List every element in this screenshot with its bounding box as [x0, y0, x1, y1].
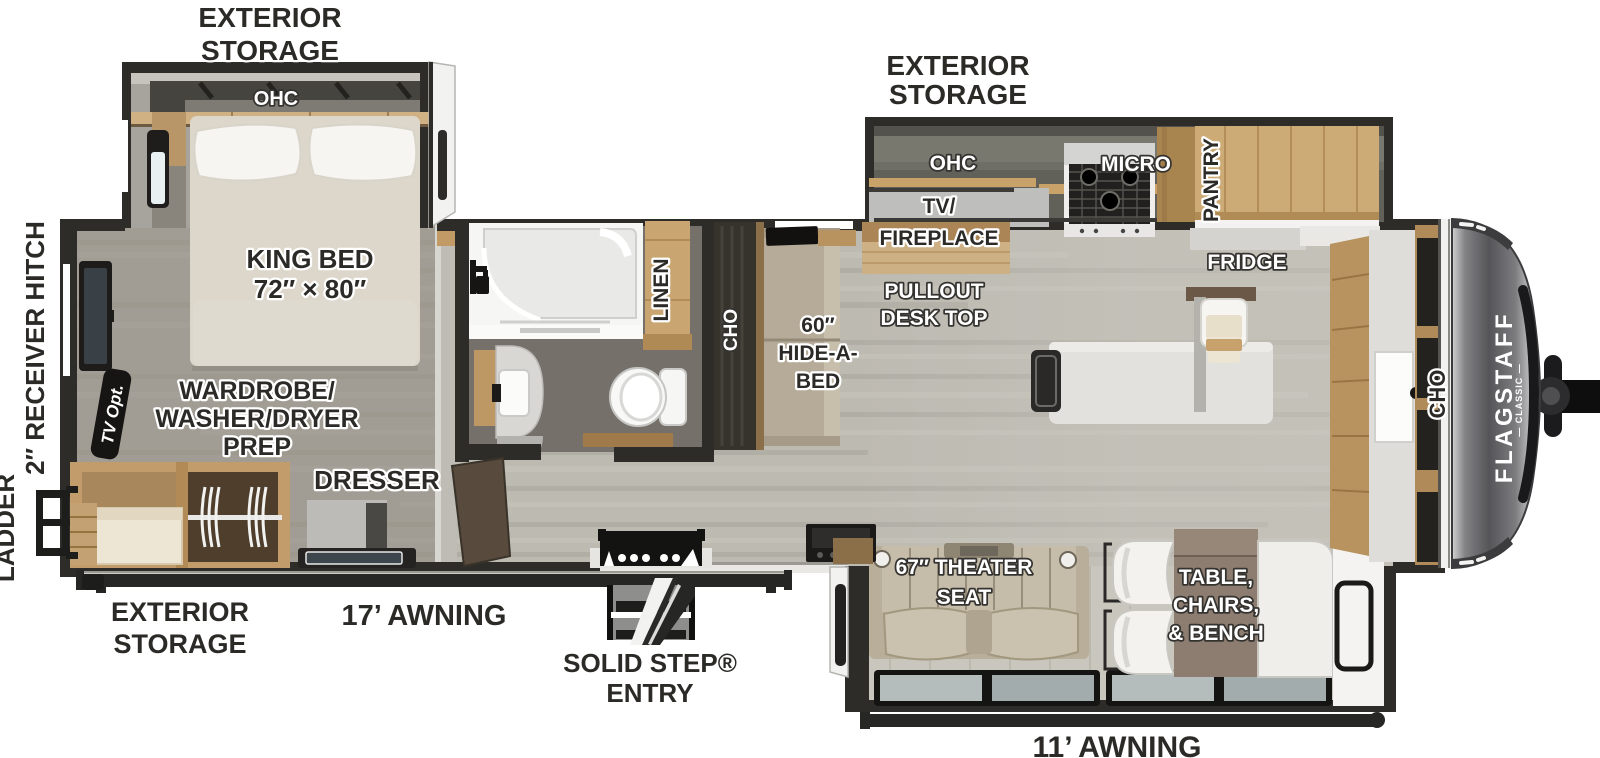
- svg-text:CHO: CHO: [721, 309, 742, 351]
- svg-text:SOLID STEP®: SOLID STEP®: [563, 648, 737, 678]
- svg-text:OHC: OHC: [254, 88, 298, 110]
- svg-text:EXTERIOR: EXTERIOR: [886, 50, 1029, 81]
- svg-text:2″ RECEIVER HITCH: 2″ RECEIVER HITCH: [20, 221, 50, 475]
- svg-text:CHAIRS,: CHAIRS,: [1173, 594, 1259, 617]
- svg-text:EXTERIOR: EXTERIOR: [198, 2, 341, 33]
- svg-text:CHO: CHO: [1425, 370, 1450, 419]
- svg-text:STORAGE: STORAGE: [889, 79, 1027, 110]
- svg-text:LINEN: LINEN: [650, 259, 673, 322]
- svg-text:PANTRY: PANTRY: [1200, 138, 1223, 222]
- svg-text:HIDE-A-: HIDE-A-: [778, 342, 857, 365]
- svg-text:SEAT: SEAT: [937, 586, 992, 609]
- svg-text:LADDER: LADDER: [0, 474, 20, 583]
- svg-text:67″ THEATER: 67″ THEATER: [896, 556, 1033, 579]
- svg-text:FIREPLACE: FIREPLACE: [879, 227, 998, 250]
- svg-text:KING BED: KING BED: [246, 244, 373, 274]
- svg-text:60″: 60″: [801, 314, 834, 337]
- svg-text:PULLOUT: PULLOUT: [884, 280, 983, 303]
- svg-text:— CLASSIC —: — CLASSIC —: [1514, 363, 1524, 437]
- svg-text:TV/: TV/: [923, 195, 956, 218]
- svg-text:DRESSER: DRESSER: [314, 465, 440, 495]
- svg-text:TABLE,: TABLE,: [1179, 566, 1253, 589]
- svg-text:17’ AWNING: 17’ AWNING: [342, 600, 507, 632]
- svg-text:OHC: OHC: [930, 152, 977, 175]
- svg-text:72″ × 80″: 72″ × 80″: [254, 274, 366, 304]
- svg-text:BED: BED: [796, 370, 840, 393]
- svg-text:PREP: PREP: [223, 433, 291, 461]
- svg-text:ENTRY: ENTRY: [606, 678, 693, 708]
- svg-text:FRIDGE: FRIDGE: [1207, 251, 1286, 274]
- svg-text:WASHER/DRYER: WASHER/DRYER: [155, 405, 358, 433]
- svg-text:WARDROBE/: WARDROBE/: [179, 377, 335, 405]
- svg-text:EXTERIOR: EXTERIOR: [111, 597, 249, 627]
- svg-text:STORAGE: STORAGE: [113, 629, 246, 659]
- svg-text:MICRO: MICRO: [1101, 153, 1171, 176]
- svg-text:11’ AWNING: 11’ AWNING: [1033, 731, 1202, 758]
- svg-text:DESK TOP: DESK TOP: [881, 307, 988, 330]
- svg-text:STORAGE: STORAGE: [201, 35, 339, 66]
- svg-text:& BENCH: & BENCH: [1168, 622, 1264, 645]
